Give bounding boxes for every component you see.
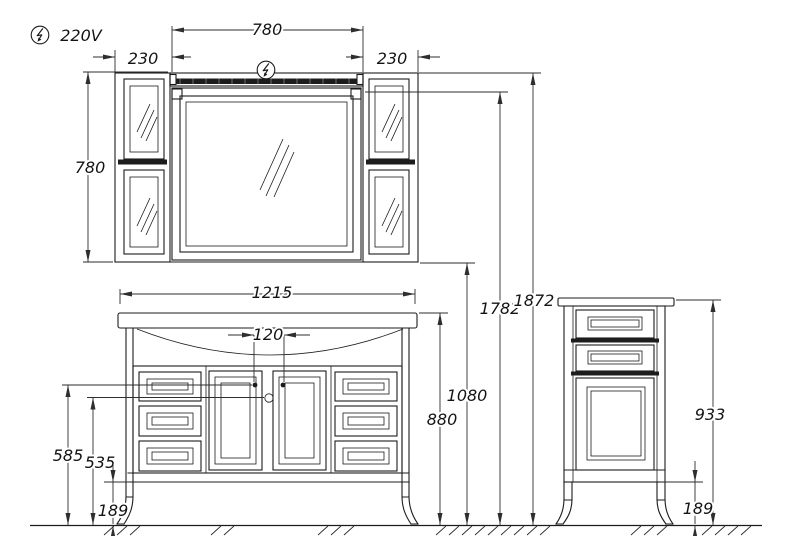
vanity-left-drawers — [139, 372, 201, 471]
mirror-hatch — [260, 139, 294, 197]
power-symbol-icon — [31, 26, 49, 44]
side-cabinet-legs — [556, 482, 673, 524]
side-cabinet-bottom-rail — [564, 470, 665, 482]
shelf-divider — [118, 160, 167, 165]
mirror-unit-left-cabinet — [115, 73, 170, 262]
side-cabinet — [556, 298, 674, 524]
light-fixture — [170, 61, 363, 86]
dim-knob-height-value: 585 — [53, 446, 84, 465]
dim-side-cabinet-height: 933 — [676, 300, 725, 525]
dim-left-cabinet-width: 230 — [93, 49, 191, 72]
dim-left-cabinet-value: 230 — [128, 49, 159, 68]
glass-hatch — [382, 104, 402, 141]
vanity-sides — [126, 328, 409, 482]
dim-countertop-height-value: 880 — [427, 410, 458, 429]
mirror-unit — [115, 61, 418, 262]
vanity-legs — [117, 482, 418, 524]
vanity-right-drawers — [335, 372, 397, 471]
dim-side-cabinet-leg-height: 189 — [660, 461, 713, 536]
floor — [30, 526, 762, 536]
vanity-bottom-rail — [126, 473, 409, 482]
dim-side-cabinet-leg-height-value: 189 — [683, 499, 714, 518]
side-cabinet-drawers — [571, 310, 659, 376]
dim-countertop-width-value: 1215 — [252, 283, 293, 302]
vanity-set-technical-drawing: 220V 780 230 230 780 1215 120 — [0, 0, 800, 536]
dim-mirror-unit-height-value: 780 — [75, 158, 106, 177]
door-knob-right — [281, 383, 286, 388]
dim-countertop-width: 1215 — [120, 283, 415, 304]
door-knob-left — [253, 383, 258, 388]
dim-lock-height-value: 535 — [85, 453, 116, 472]
side-cabinet-door — [576, 378, 654, 470]
dim-right-cabinet-value: 230 — [377, 49, 408, 68]
floor-hatching — [104, 526, 751, 535]
mirror — [172, 88, 361, 260]
voltage-label: 220V — [60, 26, 103, 45]
center-lock-knob — [265, 394, 273, 402]
power-callout: 220V — [31, 26, 103, 45]
dim-right-cabinet-width: 230 — [346, 49, 440, 72]
drawing-canvas: 220V 780 230 230 780 1215 120 — [0, 0, 800, 536]
dim-light-width-value: 780 — [252, 20, 283, 39]
glass-hatch — [382, 198, 402, 235]
glass-hatch — [137, 198, 157, 235]
vanity-doors — [209, 371, 326, 470]
dim-mirror-top-height: 1782 — [365, 92, 520, 525]
dim-vanity-leg-height-value: 189 — [98, 501, 129, 520]
glass-hatch — [137, 104, 157, 141]
side-cabinet-top — [558, 298, 674, 306]
dim-total-height-value: 1872 — [514, 291, 555, 310]
dim-knob-spacing-value: 120 — [253, 325, 284, 344]
lamp-electric-symbol-icon — [257, 61, 275, 79]
vanity-unit — [117, 313, 418, 524]
dim-unit-bottom-height-value: 1080 — [447, 386, 488, 405]
dim-unit-bottom-height: 1080 — [420, 263, 487, 525]
dim-side-cabinet-height-value: 933 — [695, 405, 726, 424]
dim-countertop-height: 880 — [419, 313, 457, 525]
dim-mirror-unit-height: 780 — [75, 72, 168, 262]
mirror-unit-right-cabinet — [363, 73, 418, 262]
vanity-front-frame — [133, 366, 402, 473]
shelf-divider — [366, 160, 415, 165]
